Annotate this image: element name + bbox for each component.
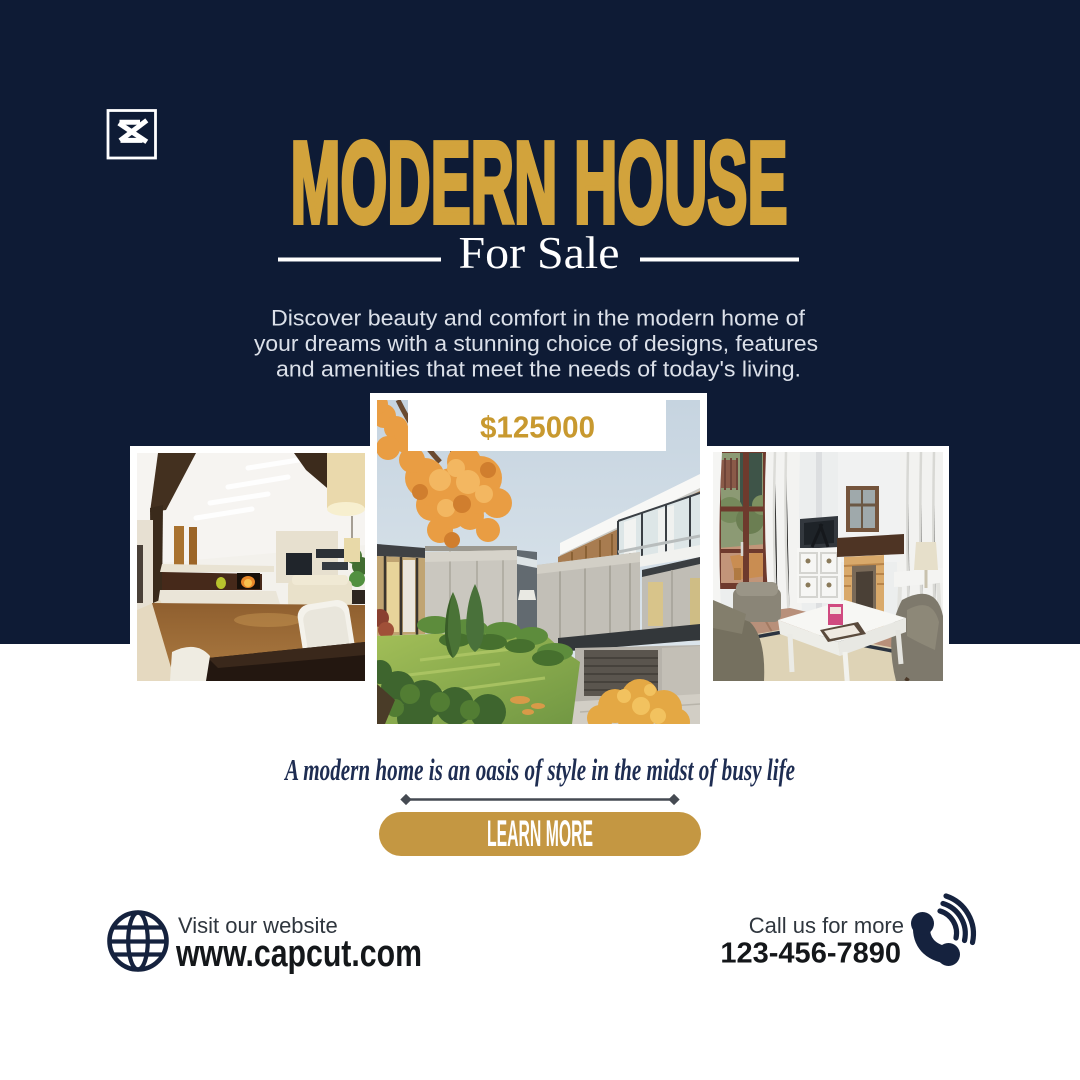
svg-text:and amenities that meet the ne: and amenities that meet the needs of tod… (276, 357, 801, 382)
svg-text:$125000: $125000 (480, 410, 595, 445)
svg-text:Discover beauty and comfort in: Discover beauty and comfort in the moder… (271, 306, 806, 331)
svg-text:123-456-7890: 123-456-7890 (720, 938, 901, 970)
svg-text:Call us for more: Call us for more (749, 913, 904, 938)
svg-text:www.capcut.com: www.capcut.com (175, 933, 422, 975)
svg-text:LEARN MORE: LEARN MORE (487, 813, 593, 854)
svg-text:For Sale: For Sale (459, 228, 620, 278)
svg-text:your dreams with a stunning ch: your dreams with a stunning choice of de… (254, 331, 818, 356)
svg-text:A modern home is an oasis of s: A modern home is an oasis of style in th… (284, 752, 796, 787)
